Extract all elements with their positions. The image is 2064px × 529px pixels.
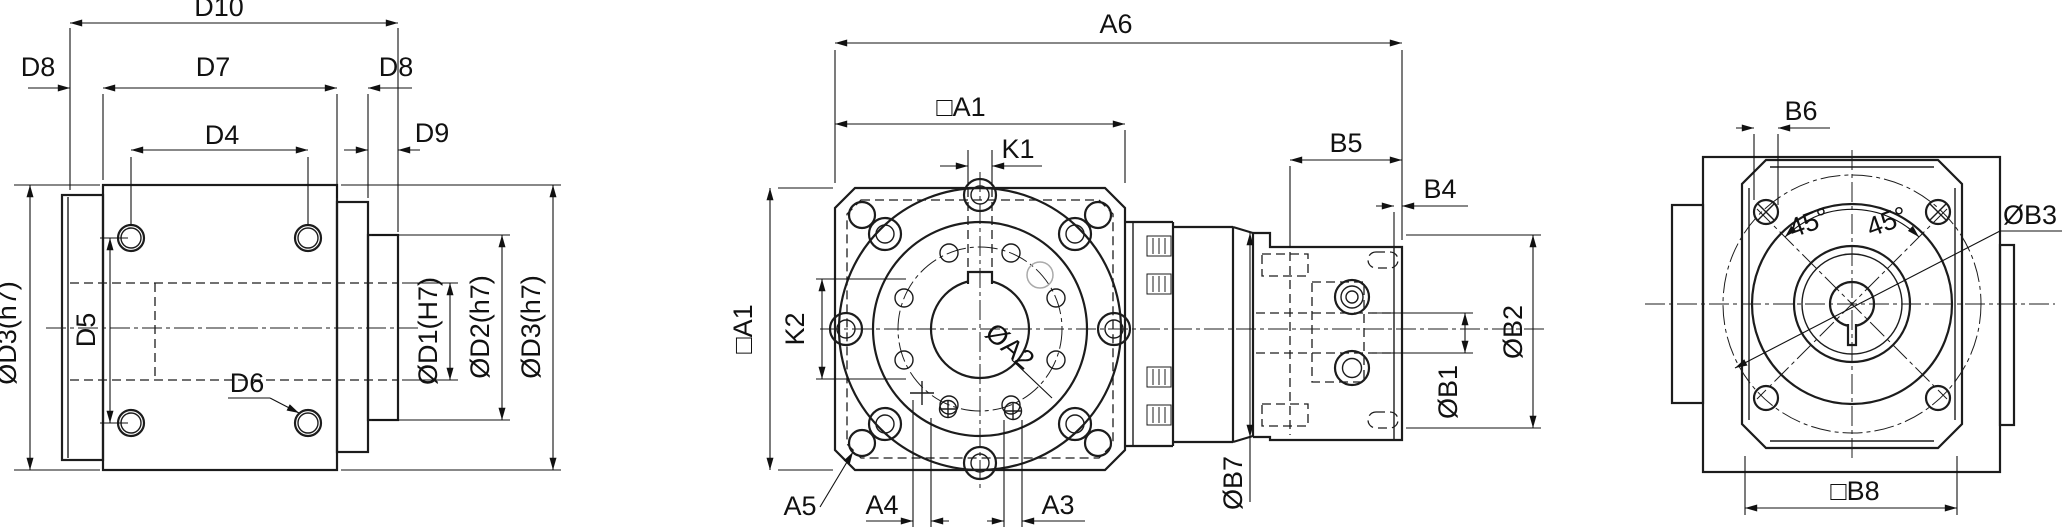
- dim-label-ob2: ØB2: [1498, 305, 1528, 359]
- dim-label-ob7: ØB7: [1218, 456, 1248, 510]
- view-output-side: D10 D8 D7 D8 D9 D4 D5 D6: [0, 0, 561, 470]
- ghost-hole: [1027, 262, 1053, 288]
- clamp-collar: [1125, 222, 1173, 446]
- front-view-body: [820, 172, 1548, 492]
- dim-label-a6: A6: [1099, 9, 1132, 39]
- side-view-body: [46, 185, 420, 470]
- dim-label-d10: D10: [194, 0, 244, 22]
- rear-view-body: [1645, 150, 2055, 472]
- dim-label-k2: K2: [780, 312, 810, 345]
- view-motor-side: 45° 45° B6 ØB3 □B8: [1645, 96, 2062, 515]
- dim-label-ob3: ØB3: [2003, 200, 2057, 230]
- technical-drawing-canvas: D10 D8 D7 D8 D9 D4 D5 D6: [0, 0, 2064, 529]
- dim-label-d8-right: D8: [379, 52, 414, 82]
- dim-label-b6: B6: [1784, 96, 1817, 126]
- tapped-hole-markers: [910, 381, 1022, 420]
- dim-label-k1: K1: [1001, 134, 1034, 164]
- dim-label-d7: D7: [196, 52, 231, 82]
- dim-label-od1: ØD1(H7): [413, 277, 443, 385]
- collar-slots: [1147, 236, 1171, 425]
- dim-label-angle-right: 45°: [1863, 200, 1912, 242]
- input-housing: [1173, 227, 1253, 442]
- dim-label-a4: A4: [865, 490, 898, 520]
- dim-label-d5: D5: [71, 313, 101, 348]
- gearbox-dimension-drawing: D10 D8 D7 D8 D9 D4 D5 D6: [0, 0, 2064, 529]
- dim-label-ob1: ØB1: [1433, 365, 1463, 419]
- dim-label-d9: D9: [415, 118, 450, 148]
- dim-label-a1-top: □A1: [936, 92, 985, 122]
- dim-label-a3: A3: [1041, 490, 1074, 520]
- dim-label-od2: ØD2(h7): [465, 275, 495, 379]
- dim-label-a5: A5: [783, 491, 816, 521]
- dim-label-d8-left: D8: [21, 52, 56, 82]
- dim-label-od3-left: ØD3(h7): [0, 281, 22, 385]
- motor-adapter: [1253, 233, 1402, 440]
- dim-label-d4: D4: [205, 120, 240, 150]
- dim-label-a1-left: □A1: [728, 304, 758, 353]
- dim-label-d6: D6: [230, 368, 265, 398]
- dim-label-b8: □B8: [1830, 476, 1879, 506]
- view-front: A6 □A1 K1 □A1 K2 ØA2: [728, 9, 1548, 527]
- dim-label-b5: B5: [1329, 128, 1362, 158]
- side-view-dimensions: D10 D8 D7 D8 D9 D4 D5 D6: [0, 0, 561, 470]
- dim-label-od3-right: ØD3(h7): [516, 275, 546, 379]
- dim-label-b4: B4: [1423, 174, 1456, 204]
